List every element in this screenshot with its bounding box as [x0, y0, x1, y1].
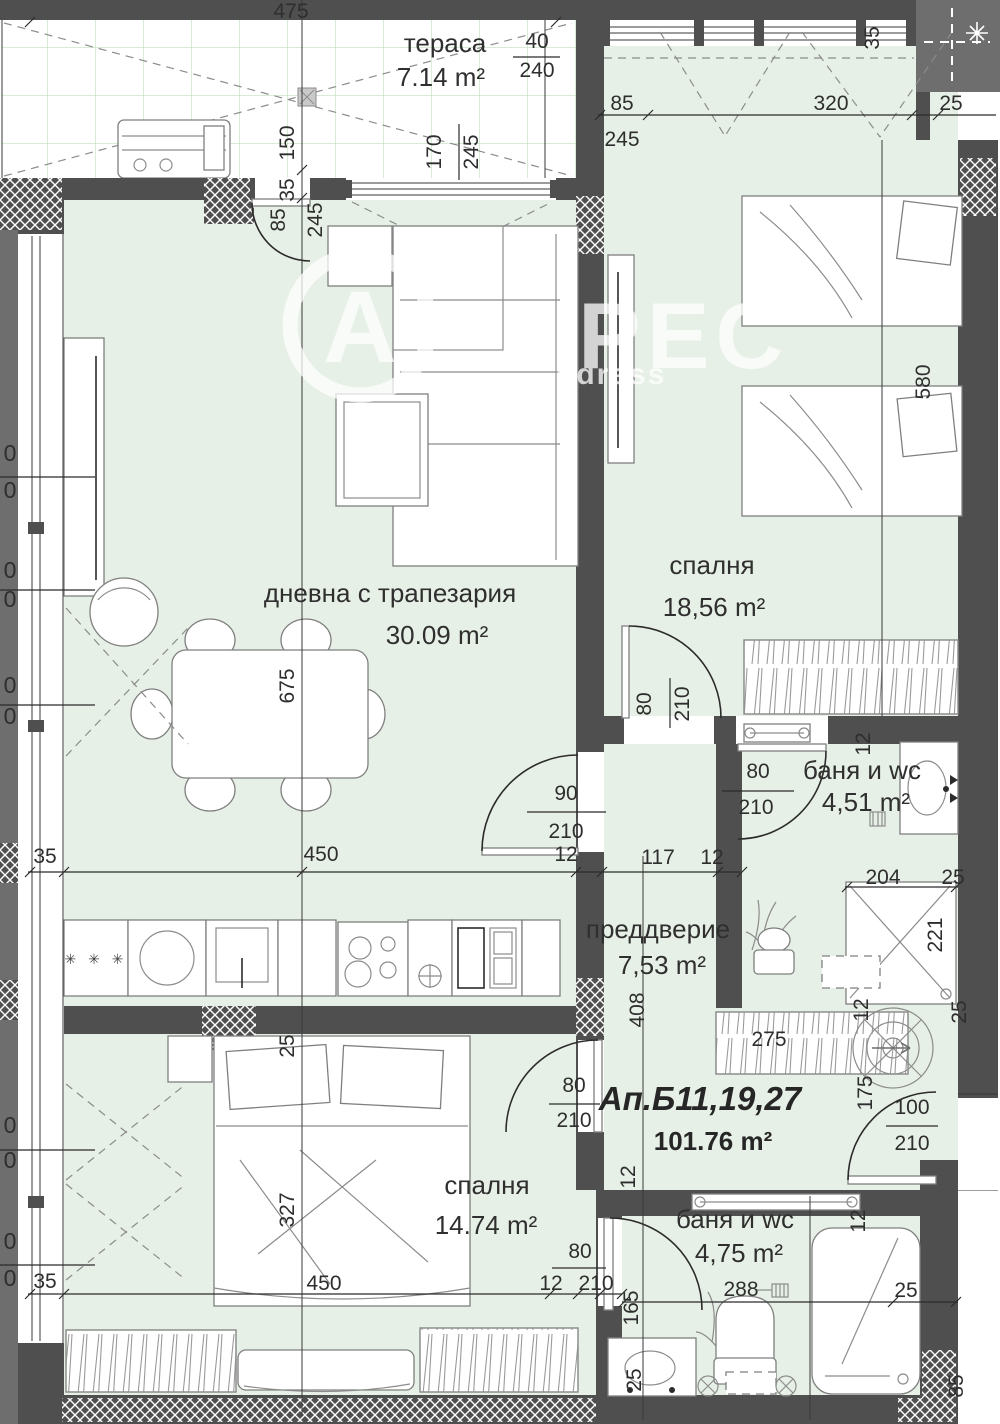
dimension-label: 450	[306, 1272, 341, 1295]
dimension-label: 80	[562, 1074, 585, 1097]
fridge-icon	[452, 920, 522, 996]
dimension-label: 320	[813, 92, 848, 115]
room-area-bedroom1: 18,56 m²	[663, 592, 766, 622]
dimension-label: 0	[4, 1228, 17, 1254]
dimension-label: 35	[861, 26, 884, 49]
dimension-label: 85	[267, 208, 290, 231]
room-name-bedroom1: спалня	[669, 550, 754, 580]
dimension-label: 80	[633, 692, 656, 715]
rug	[238, 1350, 414, 1390]
dimension-label: 25	[894, 1279, 917, 1302]
watermark-subtext: ddress	[556, 358, 666, 391]
dimension-label: 25	[941, 866, 964, 889]
dimension-label: 25	[623, 1368, 646, 1391]
tv-unit	[64, 338, 104, 596]
watermark-circle-letter: А	[323, 270, 397, 384]
dimension-label: 0	[4, 1147, 17, 1173]
dimension-label: 100	[894, 1096, 929, 1119]
dimension-label: 0	[4, 1112, 17, 1138]
dimension-label: 12	[539, 1272, 562, 1295]
room-name-hall: преддверие	[586, 914, 730, 944]
coffee-table	[336, 394, 428, 506]
dimension-label: 25	[939, 92, 962, 115]
room-name-bedroom2: спалня	[444, 1170, 529, 1200]
kitchen-counter	[64, 920, 560, 996]
dimension-label: 12	[850, 998, 873, 1021]
dimension-label: 35	[276, 178, 299, 201]
freezer-symbol: ✳ ✳ ✳	[65, 951, 128, 967]
dimension-label: 35	[33, 845, 56, 868]
dimension-label: 675	[276, 668, 299, 703]
dimension-label: 0	[4, 477, 17, 503]
dimension-label: 475	[273, 0, 308, 23]
dimension-label: 327	[276, 1192, 299, 1227]
dimension-label: 85	[610, 92, 633, 115]
dimension-label: 12	[617, 1165, 640, 1188]
terrace-bench	[118, 120, 230, 178]
dimension-label: 245	[604, 128, 639, 151]
dimension-label: 170	[423, 134, 446, 169]
floor-plan-canvas: А РЕС ddress тераса 7.14 m² дневна с тра…	[0, 0, 1000, 1424]
room-name-bath2: баня и wc	[676, 1204, 794, 1234]
dimension-label: 12	[700, 846, 723, 869]
room-area-bedroom2: 14.74 m²	[435, 1210, 538, 1240]
dimension-label: 240	[519, 59, 554, 82]
dimension-label: 80	[746, 760, 769, 783]
dimension-label: 35	[33, 1270, 56, 1293]
dimension-label: 165	[620, 1290, 643, 1325]
dimension-label: 408	[626, 992, 649, 1027]
dimension-label: 245	[460, 134, 483, 169]
dimension-label: 12	[847, 1209, 870, 1232]
dimension-label: 275	[751, 1028, 786, 1051]
dimension-label: 117	[641, 846, 674, 869]
neighbor-area	[916, 0, 1000, 92]
room-area-bath1: 4,51 m²	[822, 787, 910, 817]
dimension-label: 12	[852, 732, 875, 755]
dimension-label: 210	[556, 1109, 591, 1132]
floor-plan: А РЕС ddress тераса 7.14 m² дневна с тра…	[0, 0, 1000, 1424]
dimension-label: 0	[4, 440, 17, 466]
dimension-label: 80	[568, 1240, 591, 1263]
dimension-label: 0	[4, 703, 17, 729]
dimension-label: 85	[945, 1374, 968, 1397]
room-area-hall: 7,53 m²	[618, 950, 706, 980]
dimension-label: 0	[4, 1265, 17, 1291]
dimension-label: 25	[276, 1034, 299, 1057]
dimension-label: 204	[865, 866, 900, 889]
dimension-label: 580	[912, 364, 935, 399]
dimension-label: 245	[304, 202, 327, 237]
dimension-label: 12	[554, 843, 577, 866]
dimension-label: 210	[894, 1132, 929, 1155]
dimension-label: 0	[4, 557, 17, 583]
dimension-label: 288	[723, 1278, 758, 1301]
room-area-terrace: 7.14 m²	[397, 62, 485, 92]
apartment-area: 101.76 m²	[654, 1126, 773, 1156]
room-name-terrace: тераса	[404, 28, 487, 58]
dimension-label: 25	[948, 1000, 971, 1023]
sink-2	[608, 1338, 696, 1396]
dimension-label: 0	[4, 586, 17, 612]
room-area-living: 30.09 m²	[386, 620, 489, 650]
nightstand	[168, 1036, 212, 1082]
room-name-living: дневна с трапезария	[264, 578, 516, 608]
dimension-label: 150	[276, 125, 299, 160]
dimension-label: 175	[854, 1075, 877, 1110]
room-name-bath1: баня и wc	[803, 755, 921, 785]
apartment-label: Ап.Б11,19,27	[598, 1080, 803, 1117]
room-area-bath2: 4,75 m²	[695, 1238, 783, 1268]
washing-machine-1	[822, 956, 880, 988]
dimension-label: 40	[525, 30, 548, 53]
dimension-label: 0	[4, 672, 17, 698]
dimension-label: 90	[554, 782, 577, 805]
washing-machine-2	[726, 1372, 776, 1394]
dimension-label: 210	[671, 686, 694, 721]
dimension-label: 221	[924, 917, 947, 952]
dimension-label: 210	[548, 820, 583, 843]
dimension-label: 210	[738, 796, 773, 819]
dimension-label: 210	[578, 1272, 613, 1295]
dimension-label: 450	[303, 843, 338, 866]
